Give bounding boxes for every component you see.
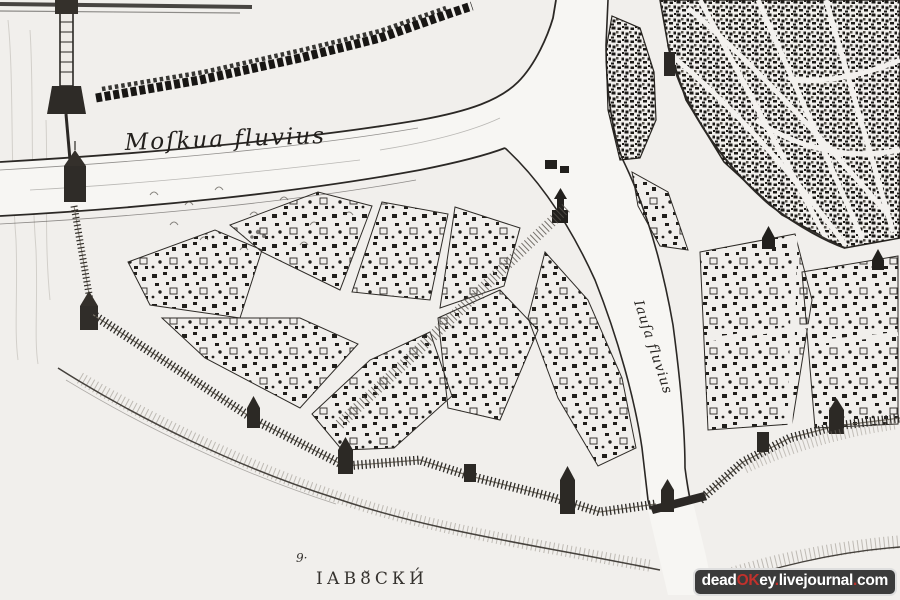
city-wall-tower [664,52,675,76]
church [552,210,568,223]
tall-tower-base [47,86,86,114]
watermark-text: com [857,572,888,589]
gate-tower [64,166,86,202]
watermark-text: livejournal [779,572,853,589]
watermark-text: dead [702,572,737,589]
tall-tower-shaft [60,12,73,86]
tall-tower-head [55,0,78,14]
watermark-badge: deadOKey.livejournal.com [693,568,897,596]
top-wall [0,4,252,13]
suburb-block [162,318,358,408]
church [762,238,775,249]
east-bank-block [802,256,898,428]
map-engraving: Moſkua fluvius Iauſa fluvius ІАВ8̌СКИ́ 9… [0,0,900,600]
engraved-map-screenshot: Moſkua fluvius Iauſa fluvius ІАВ8̌СКИ́ 9… [0,0,900,600]
district-label-marker: 9· [296,551,307,565]
suburb-block [438,290,538,420]
suburb-block [128,230,262,318]
watermark-text-accent: OK [737,572,760,589]
riverside-houses-row [96,6,472,98]
watermark-text: ey [759,572,775,589]
church [872,260,884,270]
kitaygorod-city [652,0,900,248]
district-label: ІАВ8̌СКИ́ [316,568,428,589]
